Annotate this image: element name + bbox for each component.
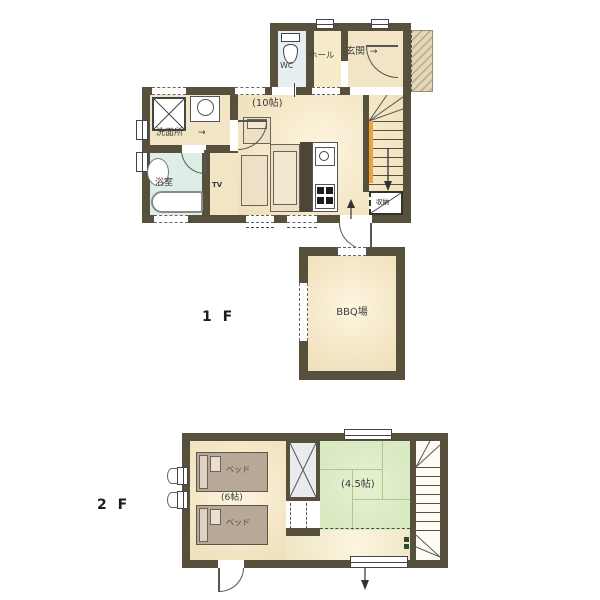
- bed-pillow: [199, 455, 208, 489]
- hall-opening: [312, 87, 340, 95]
- washroom-door-opening: [230, 120, 238, 151]
- stairs-handrail: [369, 121, 373, 183]
- tatami-size-label: (4.5帖): [341, 480, 375, 490]
- burner-icon: [317, 187, 324, 194]
- casement-arc: [167, 468, 177, 484]
- faucet-icon: [319, 151, 329, 161]
- kitchen-counter: [300, 142, 312, 212]
- bbq-opening: [338, 247, 366, 256]
- floorplan-canvas: 収納 WC ホール 玄関 → (10帖) 洗面所 → 浴室 TV BBQ場 1 …: [0, 0, 600, 600]
- tatami-line: [352, 499, 410, 500]
- window-opening: [152, 87, 186, 95]
- tatami-line: [382, 441, 383, 500]
- window-opening: [154, 215, 188, 223]
- bed-pillow: [199, 508, 208, 542]
- burner-icon: [326, 197, 333, 204]
- living-size-label: (10帖): [252, 99, 283, 109]
- stairs-winder: [369, 95, 403, 121]
- entrance-arrow: →: [370, 48, 378, 57]
- tatami-hall-boundary: [320, 528, 410, 529]
- terrace-mark: [246, 227, 274, 228]
- wall: [299, 371, 405, 380]
- toilet-tank: [281, 33, 300, 42]
- open-shelf-mark: [290, 503, 291, 529]
- door-tick: [294, 83, 295, 97]
- window-symbol: [136, 120, 148, 140]
- table: [241, 155, 268, 206]
- entrance-porch: [411, 30, 433, 92]
- storage-label: 収納: [376, 199, 389, 206]
- casement-arc: [167, 492, 177, 508]
- floor2-label: 2 F: [97, 497, 130, 513]
- stairs-treads: [416, 467, 440, 533]
- bed-blanket-fold: [210, 509, 221, 525]
- entrance-label: 玄関: [346, 47, 365, 57]
- wall: [270, 23, 278, 95]
- door-arc: [219, 568, 244, 592]
- tv-label: TV: [212, 182, 222, 189]
- window-symbol: [177, 491, 188, 509]
- wall: [396, 247, 405, 380]
- window-symbol: [371, 19, 389, 29]
- bbq-label: BBQ場: [308, 308, 396, 318]
- bed-label: ベッド: [226, 466, 250, 474]
- stairs-winder: [416, 441, 440, 467]
- window-symbol: [177, 467, 188, 485]
- stairs-winder: [416, 533, 440, 560]
- window-symbol: [344, 429, 392, 440]
- window-opening: [287, 215, 317, 223]
- sliding-door-opening: [235, 87, 265, 95]
- door-opening: [218, 560, 244, 568]
- entry-up-arrow: [344, 199, 358, 221]
- washbasin-bowl-icon: [197, 99, 214, 116]
- window-symbol: [316, 19, 334, 29]
- burner-icon: [326, 187, 333, 194]
- washroom-label: 洗面所: [156, 129, 183, 138]
- wall: [440, 433, 448, 568]
- washroom-arrow: →: [198, 129, 206, 138]
- sofa-seat: [273, 151, 297, 205]
- terrace-mark: [287, 227, 317, 228]
- hall-label: ホール: [309, 52, 335, 61]
- stair-marker: [404, 544, 409, 549]
- wc-label: WC: [280, 62, 294, 70]
- wc-door-opening: [272, 87, 296, 95]
- bbq-opening: [299, 283, 308, 341]
- tatami-line: [320, 469, 382, 470]
- window-symbol: [350, 556, 408, 568]
- bedroom-size-label: (6帖): [221, 494, 243, 503]
- open-shelf-mark: [306, 503, 307, 529]
- wall: [403, 23, 411, 223]
- bed-label: ベッド: [226, 519, 250, 527]
- window-opening: [246, 215, 274, 223]
- entrance-opening: [350, 87, 403, 95]
- bath-label: 浴室: [155, 179, 173, 188]
- wall: [286, 528, 320, 536]
- closet-icon: [286, 439, 320, 501]
- floor1-label: 1 F: [202, 309, 235, 325]
- stair-marker: [404, 537, 409, 542]
- window-down-arrow: [358, 568, 372, 592]
- bathtub: [151, 191, 203, 213]
- washing-machine-pan-icon: [152, 97, 186, 131]
- burner-icon: [317, 197, 324, 204]
- bed-blanket-fold: [210, 456, 221, 472]
- stairs-down-arrow: [381, 146, 395, 192]
